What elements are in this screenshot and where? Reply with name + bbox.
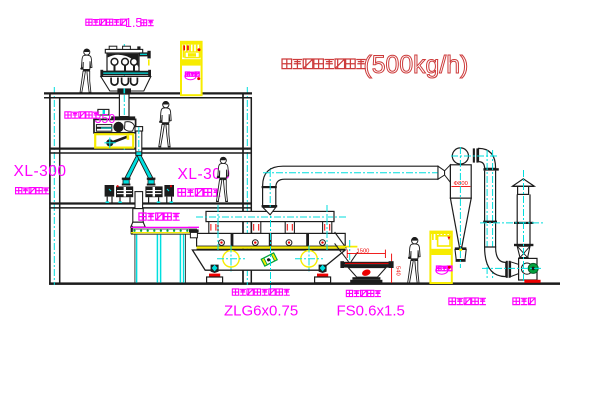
svg-text:ZLG6x0.75: ZLG6x0.75 (224, 303, 298, 320)
svg-text:XL-300: XL-300 (14, 163, 67, 180)
svg-text:(500kg/h): (500kg/h) (364, 52, 469, 79)
svg-text:FS0.6x1.5: FS0.6x1.5 (337, 303, 405, 320)
svg-text:1.5: 1.5 (125, 16, 142, 30)
svg-text:540: 540 (394, 266, 400, 276)
svg-text:350: 350 (95, 112, 116, 126)
svg-text:1500: 1500 (357, 249, 370, 255)
